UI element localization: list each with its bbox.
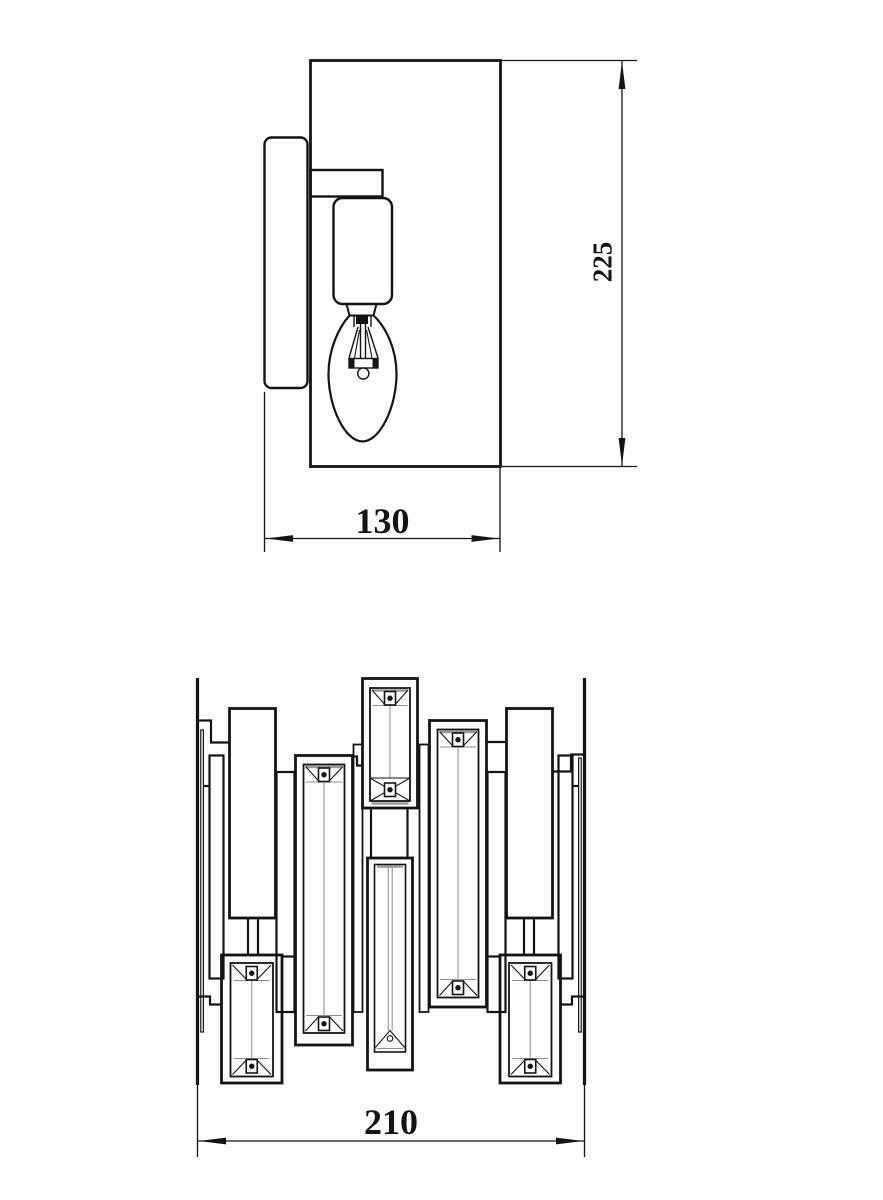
crystal-bevel: [306, 767, 319, 782]
crystal-pin: [385, 692, 396, 706]
lamp-socket: [334, 198, 393, 304]
crystal-bar-top-center: [370, 688, 410, 804]
arrow-right-icon: [472, 535, 499, 542]
arrow-left-icon: [266, 535, 293, 542]
side-view: 225 130: [265, 61, 638, 553]
crystal-pin: [385, 783, 396, 797]
crystal-bar-right-middle: [438, 730, 479, 998]
frame-step: [198, 721, 230, 743]
crystal-bevel: [463, 732, 477, 747]
crystal-pin: [319, 1017, 330, 1031]
crystal-bevel: [440, 732, 453, 747]
crystal-pin: [525, 967, 536, 981]
frame-strip: [488, 772, 506, 1012]
crystal-pin: [453, 981, 464, 995]
crystal-pin: [453, 733, 464, 747]
crystal-bevel: [375, 1031, 406, 1049]
crystal-bar-center-tall: [375, 865, 406, 1053]
frame-column: [507, 709, 553, 919]
crystal-bevel: [463, 981, 477, 996]
crystal-bevel: [536, 965, 550, 980]
bulb-filament: [349, 316, 378, 379]
filament-tip-bead: [358, 368, 369, 379]
lamp-technical-drawing: 225 130: [0, 0, 883, 1200]
crystal-bevel: [511, 965, 525, 980]
crystal-bevel: [440, 981, 453, 996]
crystal-bar-bottom-left: [231, 963, 274, 1077]
dim-height: 225: [501, 61, 637, 467]
crystal-bar-bottom-right: [509, 963, 552, 1077]
crystal-bevel: [329, 767, 343, 782]
crystal-bevel: [257, 1060, 271, 1075]
dim-width-value: 210: [364, 1102, 418, 1142]
arrow-up-icon: [619, 62, 626, 90]
arrow-right-icon: [556, 1138, 583, 1145]
frame-strip: [559, 756, 573, 979]
frame-step: [553, 755, 585, 772]
arrow-left-icon: [199, 1138, 226, 1145]
front-view: 210: [198, 678, 585, 1157]
filament-base-end: [349, 359, 355, 369]
frame-left-inner-bar: [201, 730, 204, 1032]
dim-width-value: 130: [356, 501, 410, 541]
crystal-bevel: [536, 1060, 550, 1075]
mounting-arm: [311, 170, 383, 197]
crystal-outline: [375, 865, 406, 1053]
filament-cone-edge: [349, 327, 358, 358]
filament-cone-edge: [367, 330, 373, 358]
frame-strip: [420, 745, 429, 1013]
crystal-bevel: [395, 690, 408, 705]
frame-strip: [277, 772, 295, 1012]
shade-frame: [198, 679, 585, 1084]
arrow-down-icon: [619, 438, 626, 466]
dim-width-front: 210: [198, 1076, 585, 1157]
frame-strip: [210, 756, 224, 979]
dim-width-side: 130: [265, 392, 501, 552]
crystal-bevel: [511, 1060, 525, 1075]
crystal-pin: [246, 967, 257, 981]
frame-right-inner-bar: [579, 758, 582, 1032]
crystal-pin: [387, 1036, 393, 1042]
crystal-pin: [525, 1060, 536, 1074]
wall-mount-plate: [265, 138, 308, 389]
frame-column: [230, 709, 276, 919]
crystal-bar-left-middle: [304, 765, 345, 1034]
crystal-bevel: [372, 690, 385, 705]
dim-height-value: 225: [588, 242, 618, 283]
crystal-pin: [319, 768, 330, 782]
crystal-bevel: [233, 965, 247, 980]
crystal-bevel: [257, 965, 271, 980]
crystal-bevel: [306, 1017, 319, 1032]
crystal-bevel: [233, 1060, 247, 1075]
filament-clamp: [356, 316, 368, 324]
bulb-neck: [347, 304, 377, 316]
crystal-bevel: [329, 1017, 343, 1032]
filament-base-end: [373, 359, 379, 369]
shade-profile-outline: [311, 61, 501, 467]
crystal-pin: [246, 1060, 257, 1074]
drawing-sheet: 225 130: [0, 0, 883, 1200]
